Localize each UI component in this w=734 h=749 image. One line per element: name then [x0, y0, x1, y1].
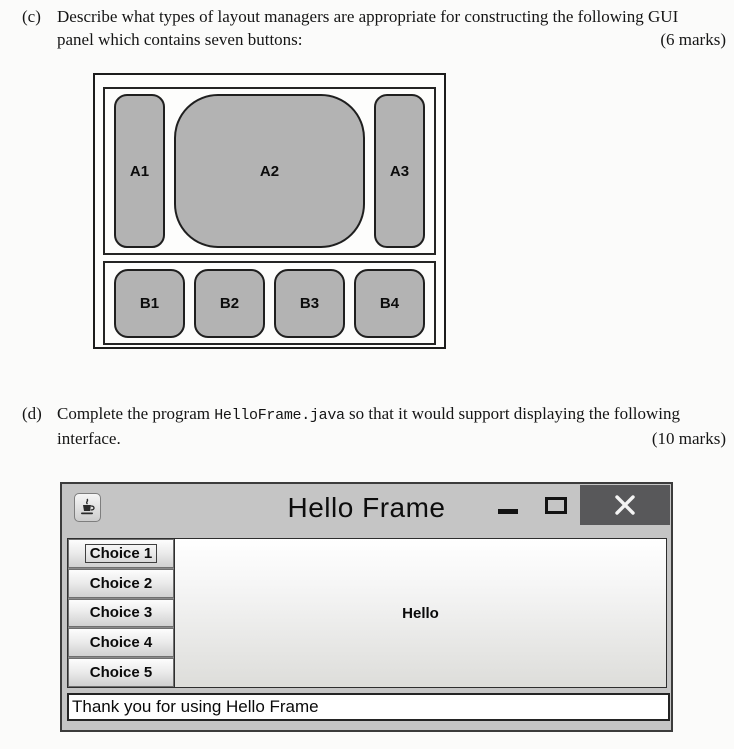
choice-4-button[interactable]: Choice 4 [68, 628, 174, 657]
diagram-button-a2: A2 [174, 94, 365, 248]
question-d-line2: interface. [57, 427, 121, 450]
choice-5-label: Choice 5 [90, 664, 153, 681]
question-d-label: (d) [22, 402, 57, 427]
gui-panel-diagram: A1 A2 A3 B1 B2 B3 B4 [93, 73, 446, 349]
choice-3-button[interactable]: Choice 3 [68, 599, 174, 628]
diagram-button-b4: B4 [354, 269, 425, 338]
status-text-field[interactable]: Thank you for using Hello Frame [67, 693, 670, 721]
question-d-code: HelloFrame.java [214, 407, 345, 424]
center-panel: Hello [174, 539, 666, 687]
diagram-bottom-subpanel: B1 B2 B3 B4 [103, 261, 436, 345]
choice-2-button[interactable]: Choice 2 [68, 569, 174, 598]
choice-3-label: Choice 3 [90, 604, 153, 621]
question-d-marks: (10 marks) [652, 427, 726, 450]
question-c-line2: panel which contains seven buttons: [57, 28, 303, 51]
hello-label: Hello [402, 605, 439, 622]
choice-4-label: Choice 4 [90, 634, 153, 651]
maximize-button[interactable] [545, 497, 567, 514]
choice-2-label: Choice 2 [90, 575, 153, 592]
question-c-marks: (6 marks) [660, 28, 726, 51]
minimize-button[interactable] [498, 509, 518, 514]
close-icon [612, 493, 638, 517]
choice-1-label: Choice 1 [85, 544, 158, 563]
diagram-button-b1: B1 [114, 269, 185, 338]
diagram-top-subpanel: A1 A2 A3 [103, 87, 436, 255]
hello-frame-window: Hello Frame Choice 1 Choice 2 Choice 3 C… [60, 482, 673, 732]
question-c-line1: Describe what types of layout managers a… [57, 5, 678, 28]
diagram-button-a3: A3 [374, 94, 425, 248]
status-text: Thank you for using Hello Frame [72, 697, 319, 716]
question-c-label: (c) [22, 5, 57, 28]
titlebar[interactable]: Hello Frame [62, 484, 671, 537]
diagram-button-a1: A1 [114, 94, 165, 248]
diagram-button-b2: B2 [194, 269, 265, 338]
choice-1-button[interactable]: Choice 1 [68, 539, 174, 568]
question-d: (d) Complete the program HelloFrame.java… [22, 402, 726, 450]
choice-button-column: Choice 1 Choice 2 Choice 3 Choice 4 Choi… [68, 539, 174, 687]
question-c: (c) Describe what types of layout manage… [22, 5, 726, 51]
choice-5-button[interactable]: Choice 5 [68, 658, 174, 687]
window-content-area: Choice 1 Choice 2 Choice 3 Choice 4 Choi… [67, 538, 667, 688]
diagram-button-b3: B3 [274, 269, 345, 338]
question-d-line1: Complete the program HelloFrame.java so … [57, 402, 680, 427]
close-button[interactable] [580, 485, 670, 525]
